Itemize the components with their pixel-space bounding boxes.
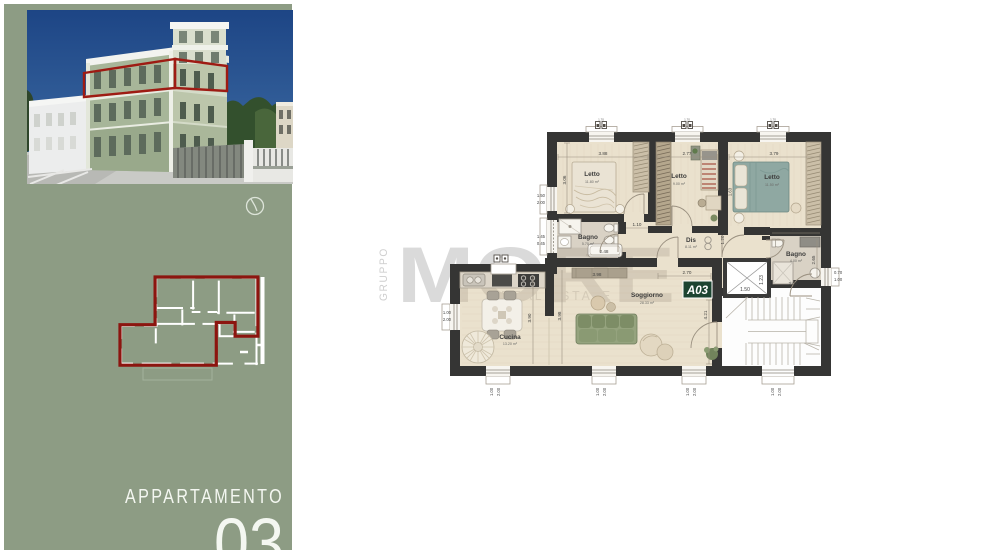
svg-text:2.00: 2.00 [792, 227, 801, 232]
svg-text:Letto: Letto [671, 173, 687, 180]
svg-text:1.45: 1.45 [537, 234, 546, 239]
svg-text:2.00: 2.00 [496, 387, 501, 396]
svg-text:3.06: 3.06 [562, 175, 567, 184]
svg-text:1.70: 1.70 [770, 118, 776, 122]
svg-text:2.65: 2.65 [811, 255, 816, 264]
svg-text:A03: A03 [686, 285, 709, 297]
svg-text:2.00: 2.00 [602, 387, 607, 396]
svg-text:28.33 m²: 28.33 m² [640, 301, 655, 305]
svg-text:0.70: 0.70 [834, 270, 843, 275]
svg-text:2.00: 2.00 [777, 387, 782, 396]
svg-text:1.00: 1.00 [685, 387, 690, 396]
svg-text:Letto: Letto [584, 171, 600, 178]
svg-text:1.63: 1.63 [728, 187, 733, 196]
svg-text:8.11 m²: 8.11 m² [685, 245, 698, 249]
svg-text:1.00: 1.00 [595, 387, 600, 396]
svg-text:0.45: 0.45 [537, 241, 546, 246]
svg-text:5.70 m²: 5.70 m² [582, 242, 595, 246]
svg-text:03: 03 [214, 504, 284, 550]
svg-text:1.00: 1.00 [770, 387, 775, 396]
svg-text:1.50: 1.50 [537, 193, 546, 198]
svg-text:Bagno: Bagno [786, 251, 806, 258]
svg-text:1.20: 1.20 [720, 235, 725, 244]
svg-text:2.02: 2.02 [789, 281, 798, 286]
svg-text:3.98: 3.98 [593, 272, 602, 277]
svg-text:4.00 m²: 4.00 m² [790, 259, 803, 263]
svg-text:1.70: 1.70 [598, 118, 604, 122]
svg-text:11.80 m²: 11.80 m² [585, 180, 600, 184]
svg-text:3.98: 3.98 [557, 311, 562, 320]
svg-text:Bagno: Bagno [578, 234, 598, 241]
svg-text:1.00: 1.00 [834, 277, 843, 282]
svg-text:2.00: 2.00 [537, 200, 546, 205]
svg-text:Letto: Letto [764, 174, 780, 181]
svg-text:GRUPPO: GRUPPO [378, 247, 390, 301]
svg-text:3.79: 3.79 [770, 151, 779, 156]
svg-text:Cucina: Cucina [499, 334, 521, 341]
svg-text:2.00: 2.00 [692, 387, 697, 396]
svg-text:13.20 m²: 13.20 m² [503, 342, 518, 346]
svg-text:1.00: 1.00 [489, 387, 494, 396]
svg-text:2.48: 2.48 [600, 249, 609, 254]
svg-text:11.50 m²: 11.50 m² [765, 183, 780, 187]
svg-text:1.23: 1.23 [759, 275, 765, 285]
svg-text:1.00: 1.00 [443, 310, 452, 315]
svg-text:2.70: 2.70 [683, 270, 692, 275]
svg-text:Soggiorno: Soggiorno [631, 292, 663, 299]
svg-text:4.21: 4.21 [703, 310, 708, 319]
svg-text:2.00: 2.00 [443, 317, 452, 322]
svg-text:3.88: 3.88 [599, 151, 608, 156]
svg-text:3.90: 3.90 [527, 313, 532, 322]
svg-text:9.00 m²: 9.00 m² [673, 182, 686, 186]
svg-text:Dis: Dis [686, 237, 696, 244]
svg-text:1.70: 1.70 [684, 118, 690, 122]
svg-text:1.10: 1.10 [633, 222, 642, 227]
svg-text:1.50: 1.50 [740, 287, 750, 293]
svg-text:2.77: 2.77 [683, 151, 692, 156]
